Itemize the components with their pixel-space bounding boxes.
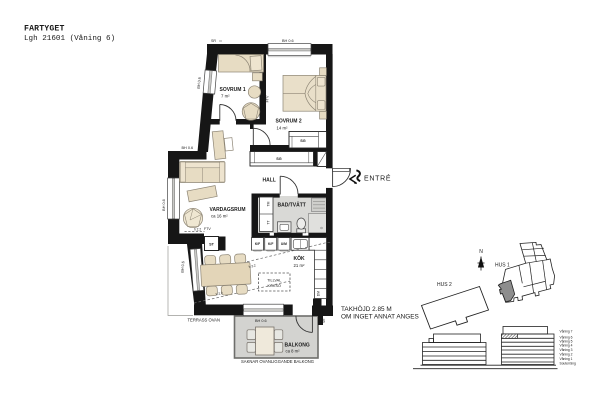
svg-text:TM: TM xyxy=(266,201,270,206)
svg-text:TILLVAL: TILLVAL xyxy=(267,279,281,283)
svg-text:U/M: U/M xyxy=(281,242,287,246)
svg-text:BH 0.6: BH 0.6 xyxy=(197,77,202,89)
svg-text:ca 16 m²: ca 16 m² xyxy=(211,214,228,219)
svg-text:HALL: HALL xyxy=(263,178,276,184)
svg-text:TAKHÖJD 2.85 M: TAKHÖJD 2.85 M xyxy=(341,305,392,313)
svg-text:HUS 1: HUS 1 xyxy=(495,263,510,269)
svg-text:FTV: FTV xyxy=(204,227,211,231)
svg-text:Våning 7: Våning 7 xyxy=(560,330,573,334)
svg-text:OM INGET ANNAT ANGES: OM INGET ANNAT ANGES xyxy=(341,314,419,321)
svg-text:TERRASS OVAN: TERRASS OVAN xyxy=(188,318,221,323)
svg-text:DM: DM xyxy=(317,291,321,296)
svg-text:K/F: K/F xyxy=(268,242,273,246)
svg-text:Lgh 21601 (Våning 6): Lgh 21601 (Våning 6) xyxy=(24,34,115,43)
svg-text:BH 0.6: BH 0.6 xyxy=(181,261,186,273)
svg-text:Våning 3: Våning 3 xyxy=(560,348,573,352)
svg-text:Våning 1: Våning 1 xyxy=(560,357,573,361)
svg-text:ca 8 m²: ca 8 m² xyxy=(286,349,301,354)
svg-text:Våning 2: Våning 2 xyxy=(560,352,573,356)
svg-text:SR: SR xyxy=(322,318,326,323)
svg-text:FARTYGET: FARTYGET xyxy=(24,25,65,34)
svg-text:N: N xyxy=(479,249,483,255)
svg-text:Våning 4: Våning 4 xyxy=(560,343,573,347)
svg-text:K/F: K/F xyxy=(255,242,260,246)
svg-text:SOVRUM 1: SOVRUM 1 xyxy=(220,87,246,93)
svg-text:KÖK: KÖK xyxy=(294,255,306,262)
svg-text:BH 0.6: BH 0.6 xyxy=(282,39,294,43)
svg-text:TT: TT xyxy=(266,220,270,224)
svg-text:h 2.2: h 2.2 xyxy=(194,228,201,232)
svg-text:KÖKSÖ: KÖKSÖ xyxy=(267,284,281,288)
svg-text:SOVRUM 2: SOVRUM 2 xyxy=(276,119,302,125)
svg-text:BAD/TVÄTT: BAD/TVÄTT xyxy=(278,202,306,209)
svg-text:SAKNAR OVANLIGGANDE BALKONG: SAKNAR OVANLIGGANDE BALKONG xyxy=(241,359,314,364)
svg-text:21 m²: 21 m² xyxy=(294,263,306,268)
svg-text:SR: SR xyxy=(211,39,216,43)
svg-text:ST: ST xyxy=(209,243,215,247)
svg-text:SG: SG xyxy=(276,157,282,161)
svg-text:h 2.2: h 2.2 xyxy=(248,263,256,269)
svg-text:BH 0.6: BH 0.6 xyxy=(182,146,194,150)
svg-text:7 m²: 7 m² xyxy=(221,94,230,99)
svg-text:BH 0.6: BH 0.6 xyxy=(255,319,267,323)
svg-text:HUS 2: HUS 2 xyxy=(437,282,452,288)
svg-text:h 2.2: h 2.2 xyxy=(215,291,223,297)
svg-text:Souterräng: Souterräng xyxy=(560,361,576,365)
svg-text:FTV: FTV xyxy=(265,95,269,102)
svg-text:14 m²: 14 m² xyxy=(277,126,289,131)
svg-text:BH 0.6: BH 0.6 xyxy=(162,199,166,211)
svg-text:SG: SG xyxy=(300,139,306,143)
svg-text:VARDAGSRUM: VARDAGSRUM xyxy=(210,207,246,213)
svg-text:ENTRÉ: ENTRÉ xyxy=(364,173,391,182)
